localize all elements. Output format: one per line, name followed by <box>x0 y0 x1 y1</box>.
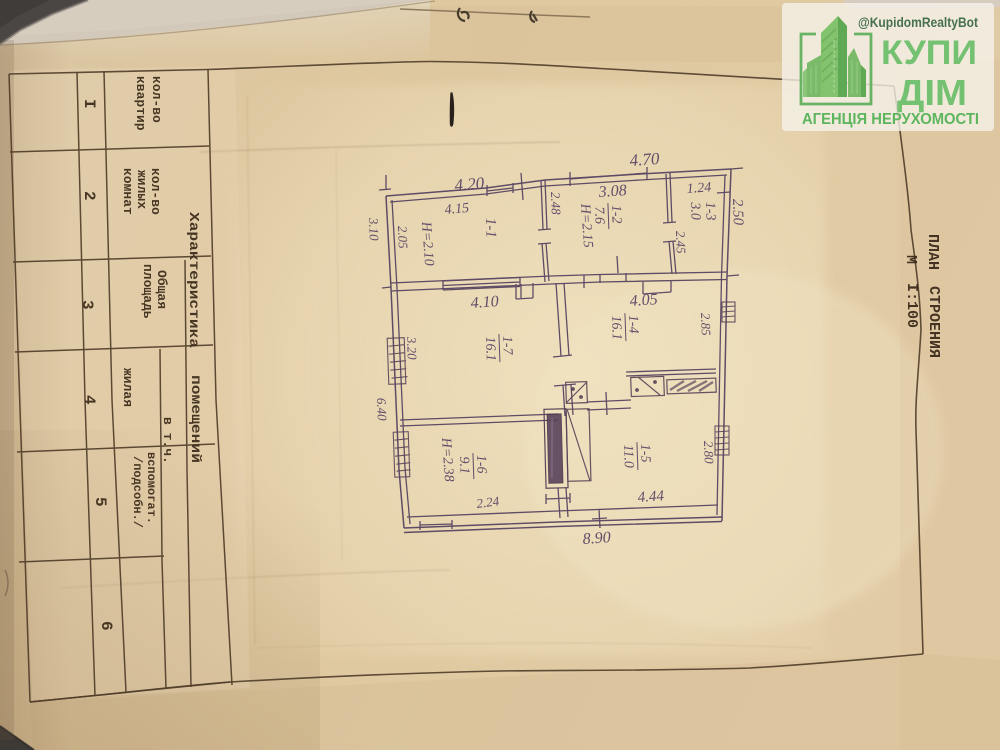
svg-text:2.05: 2.05 <box>395 226 411 250</box>
svg-text:3.0: 3.0 <box>687 201 703 220</box>
svg-text:М: М <box>902 255 919 264</box>
svg-text:4.44: 4.44 <box>637 488 665 506</box>
svg-text:11.0: 11.0 <box>620 444 636 468</box>
svg-text:ДІМ: ДІМ <box>897 72 967 113</box>
svg-text:в т.ч.: в т.ч. <box>160 417 175 464</box>
svg-text:кол-во: кол-во <box>149 76 164 123</box>
svg-text:4: 4 <box>80 395 98 405</box>
svg-text:комнат: комнат <box>120 168 135 215</box>
svg-text:жилых: жилых <box>134 170 149 209</box>
svg-text:жилая: жилая <box>120 368 135 407</box>
svg-text:H=2.10: H=2.10 <box>418 220 436 266</box>
svg-text:6.40: 6.40 <box>374 398 390 422</box>
svg-text:2.50: 2.50 <box>729 199 746 226</box>
svg-text:3.08: 3.08 <box>597 182 627 201</box>
svg-text:2.24: 2.24 <box>476 493 501 511</box>
svg-text:3: 3 <box>78 300 96 310</box>
svg-text:КУПИ: КУПИ <box>881 34 977 72</box>
svg-text:6: 6 <box>97 621 115 631</box>
svg-text:1-5: 1-5 <box>637 444 653 463</box>
svg-text:1-1: 1-1 <box>482 218 499 239</box>
svg-text:1.24: 1.24 <box>686 180 711 197</box>
svg-text:16.1: 16.1 <box>482 336 498 361</box>
svg-text:I:100: I:100 <box>903 283 920 328</box>
svg-text:H=2.38: H=2.38 <box>438 436 456 482</box>
svg-text:4.15: 4.15 <box>444 201 470 218</box>
svg-text:I: I <box>80 99 98 109</box>
svg-text:вспомогат.: вспомогат. <box>144 452 158 524</box>
svg-text:АГЕНЦІЯ НЕРУХОМОСТІ: АГЕНЦІЯ НЕРУХОМОСТІ <box>802 111 979 128</box>
svg-text:7.6: 7.6 <box>591 206 607 224</box>
svg-text:4.05: 4.05 <box>629 291 658 310</box>
svg-text:кол-во: кол-во <box>148 168 163 215</box>
svg-text:3.20: 3.20 <box>404 336 420 361</box>
svg-text:ПЛАН: ПЛАН <box>924 234 941 270</box>
svg-text:5: 5 <box>91 497 109 507</box>
svg-text:2.80: 2.80 <box>701 441 717 465</box>
svg-text:СТРОЕНИЯ: СТРОЕНИЯ <box>925 286 942 358</box>
svg-text:2.48: 2.48 <box>548 192 564 216</box>
svg-text:@KupidomRealtyBot: @KupidomRealtyBot <box>858 14 978 30</box>
svg-text:2.45: 2.45 <box>673 231 689 255</box>
svg-text:1-7: 1-7 <box>499 336 515 356</box>
svg-text:4.20: 4.20 <box>454 173 486 195</box>
svg-text:1-3: 1-3 <box>702 202 718 221</box>
svg-text:1-4: 1-4 <box>625 315 641 334</box>
svg-text:1-6: 1-6 <box>473 455 489 474</box>
svg-text:Общая: Общая <box>154 270 169 309</box>
svg-text:2.85: 2.85 <box>698 313 714 337</box>
svg-text:/подсобн./: /подсобн./ <box>130 456 145 528</box>
svg-text:3.10: 3.10 <box>366 217 382 242</box>
svg-text:9.1: 9.1 <box>456 456 472 474</box>
svg-text:16.1: 16.1 <box>608 315 624 340</box>
svg-text:8.90: 8.90 <box>582 529 611 548</box>
svg-text:площадь: площадь <box>140 264 155 319</box>
svg-text:4.70: 4.70 <box>629 149 661 170</box>
svg-text:Характеристика: Характеристика <box>185 212 201 349</box>
svg-text:4.10: 4.10 <box>470 293 499 312</box>
svg-text:помещений: помещений <box>187 375 203 463</box>
svg-text:1-2: 1-2 <box>608 205 624 224</box>
svg-text:квартир: квартир <box>133 76 148 131</box>
svg-text:2: 2 <box>80 191 98 201</box>
